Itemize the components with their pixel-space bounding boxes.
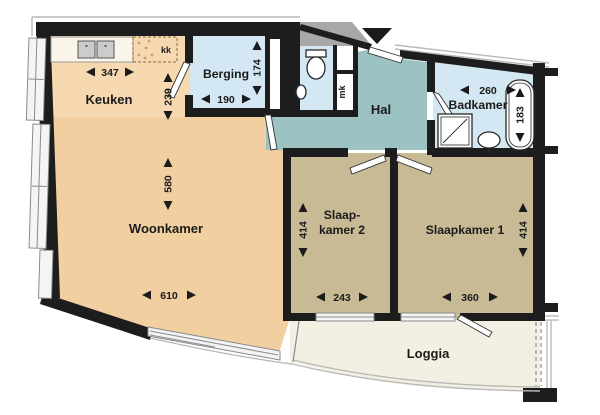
svg-text:260: 260 <box>479 85 497 97</box>
svg-text:580: 580 <box>163 175 175 193</box>
sink-right <box>97 41 114 58</box>
label-badkamer: Badkamer <box>449 98 508 112</box>
label-berging: Berging <box>203 67 249 81</box>
svg-text:414: 414 <box>298 221 310 239</box>
label-woonkamer: Woonkamer <box>129 221 203 236</box>
svg-text:347: 347 <box>101 67 119 79</box>
toilet-tank <box>306 50 326 57</box>
label-loggia: Loggia <box>407 346 450 361</box>
kk-label: kk <box>161 45 172 55</box>
label-slaapkamer2-line2: kamer 2 <box>319 223 365 237</box>
floor-plan-canvas: kk mk Keuken Berging Hal Badkamer Woonka <box>0 0 600 415</box>
svg-text:610: 610 <box>160 290 178 302</box>
svg-text:183: 183 <box>515 106 527 124</box>
svg-text:190: 190 <box>217 94 235 106</box>
label-keuken: Keuken <box>86 92 133 107</box>
toilet-bowl <box>307 57 325 79</box>
svg-text:243: 243 <box>333 292 351 304</box>
shower <box>438 114 472 148</box>
svg-text:174: 174 <box>252 59 264 77</box>
mk-label: mk <box>337 85 347 99</box>
svg-text:239: 239 <box>163 88 175 106</box>
label-slaapkamer1: Slaapkamer 1 <box>426 223 505 237</box>
label-hal: Hal <box>371 102 391 117</box>
floor-plan-page: kk mk Keuken Berging Hal Badkamer Woonka <box>0 0 600 415</box>
svg-text:414: 414 <box>518 221 530 239</box>
toilet-basin <box>296 85 306 99</box>
label-slaapkamer2-line1: Slaap- <box>324 208 361 222</box>
svg-text:360: 360 <box>461 292 479 304</box>
sink-left <box>78 41 95 58</box>
